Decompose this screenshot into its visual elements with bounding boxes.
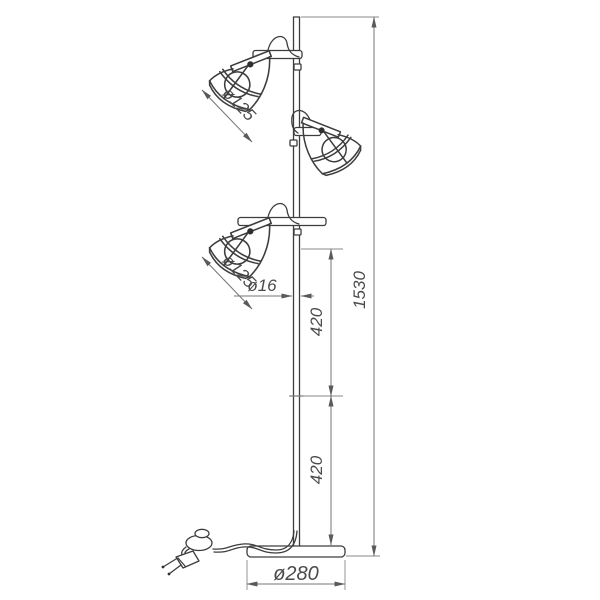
lamp-pole (290, 17, 303, 546)
plug-prong (163, 559, 176, 567)
foot-switch (186, 529, 212, 550)
foot-switch-button (195, 529, 209, 537)
dimension-upper-segment: 420 (307, 249, 331, 396)
dimension-lower-shade: ø125 (202, 251, 260, 309)
head-top-clamp (294, 64, 301, 70)
head-middle-shade (290, 100, 366, 181)
plug-prong (169, 565, 181, 574)
lamp-head-middle (290, 100, 366, 181)
base-diameter-label: ø280 (273, 563, 319, 585)
lower-segment-label: 420 (307, 455, 326, 484)
power-plug (162, 551, 199, 575)
dimension-base-diameter: ø280 (247, 563, 345, 585)
technical-drawing-canvas: 1530 420 420 ø16 ø280 ø125 ø125 (0, 0, 600, 600)
floor-lamp-drawing: 1530 420 420 ø16 ø280 ø125 ø125 (0, 0, 600, 600)
dimension-top-shade: ø125 (202, 84, 260, 142)
dimension-total-height: 1530 (350, 17, 374, 556)
upper-segment-label: 420 (307, 307, 326, 336)
total-height-label: 1530 (350, 271, 369, 309)
dimension-lower-segment: 420 (307, 396, 331, 545)
head-middle-clamp (290, 140, 297, 146)
top-shade-label: ø125 (219, 84, 260, 125)
head-bottom-clamp (294, 229, 301, 235)
lamp-head-bottom (204, 200, 326, 285)
